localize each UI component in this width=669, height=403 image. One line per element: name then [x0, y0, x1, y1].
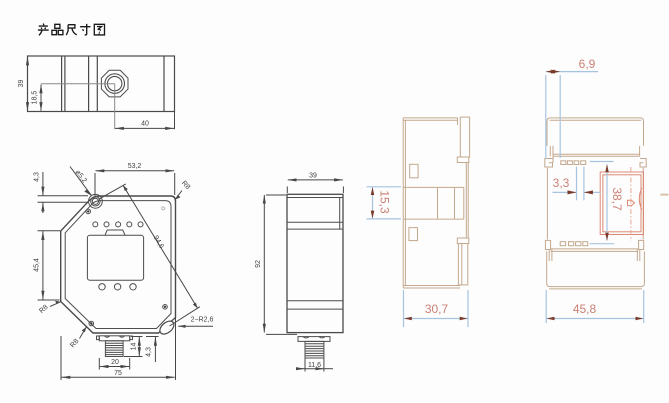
svg-text:94,6: 94,6: [152, 235, 165, 250]
svg-text:4,3: 4,3: [146, 347, 153, 357]
svg-text:45,8: 45,8: [573, 302, 597, 316]
svg-text:39: 39: [309, 172, 317, 179]
svg-text:3,3: 3,3: [553, 176, 570, 190]
svg-text:20: 20: [111, 359, 119, 366]
svg-text:14: 14: [131, 343, 138, 351]
svg-text:53,2: 53,2: [128, 163, 142, 170]
svg-text:38,7: 38,7: [610, 187, 624, 211]
svg-text:R8: R8: [180, 180, 191, 191]
svg-text:30,7: 30,7: [425, 302, 449, 316]
svg-text:40: 40: [141, 121, 149, 128]
svg-text:6,9: 6,9: [579, 57, 596, 71]
svg-text:15,3: 15,3: [378, 190, 392, 214]
svg-text:ø5,2: ø5,2: [74, 169, 88, 184]
svg-text:2−R2,6: 2−R2,6: [191, 317, 214, 324]
svg-text:R8: R8: [69, 338, 80, 349]
svg-text:92: 92: [255, 260, 262, 268]
svg-text:75: 75: [114, 370, 122, 377]
svg-text:4,3: 4,3: [34, 172, 41, 182]
svg-text:11,6: 11,6: [308, 362, 321, 369]
svg-text:39: 39: [18, 80, 25, 88]
svg-text:R8: R8: [38, 304, 49, 315]
svg-text:18,5: 18,5: [32, 91, 39, 105]
svg-text:45,4: 45,4: [33, 258, 40, 272]
